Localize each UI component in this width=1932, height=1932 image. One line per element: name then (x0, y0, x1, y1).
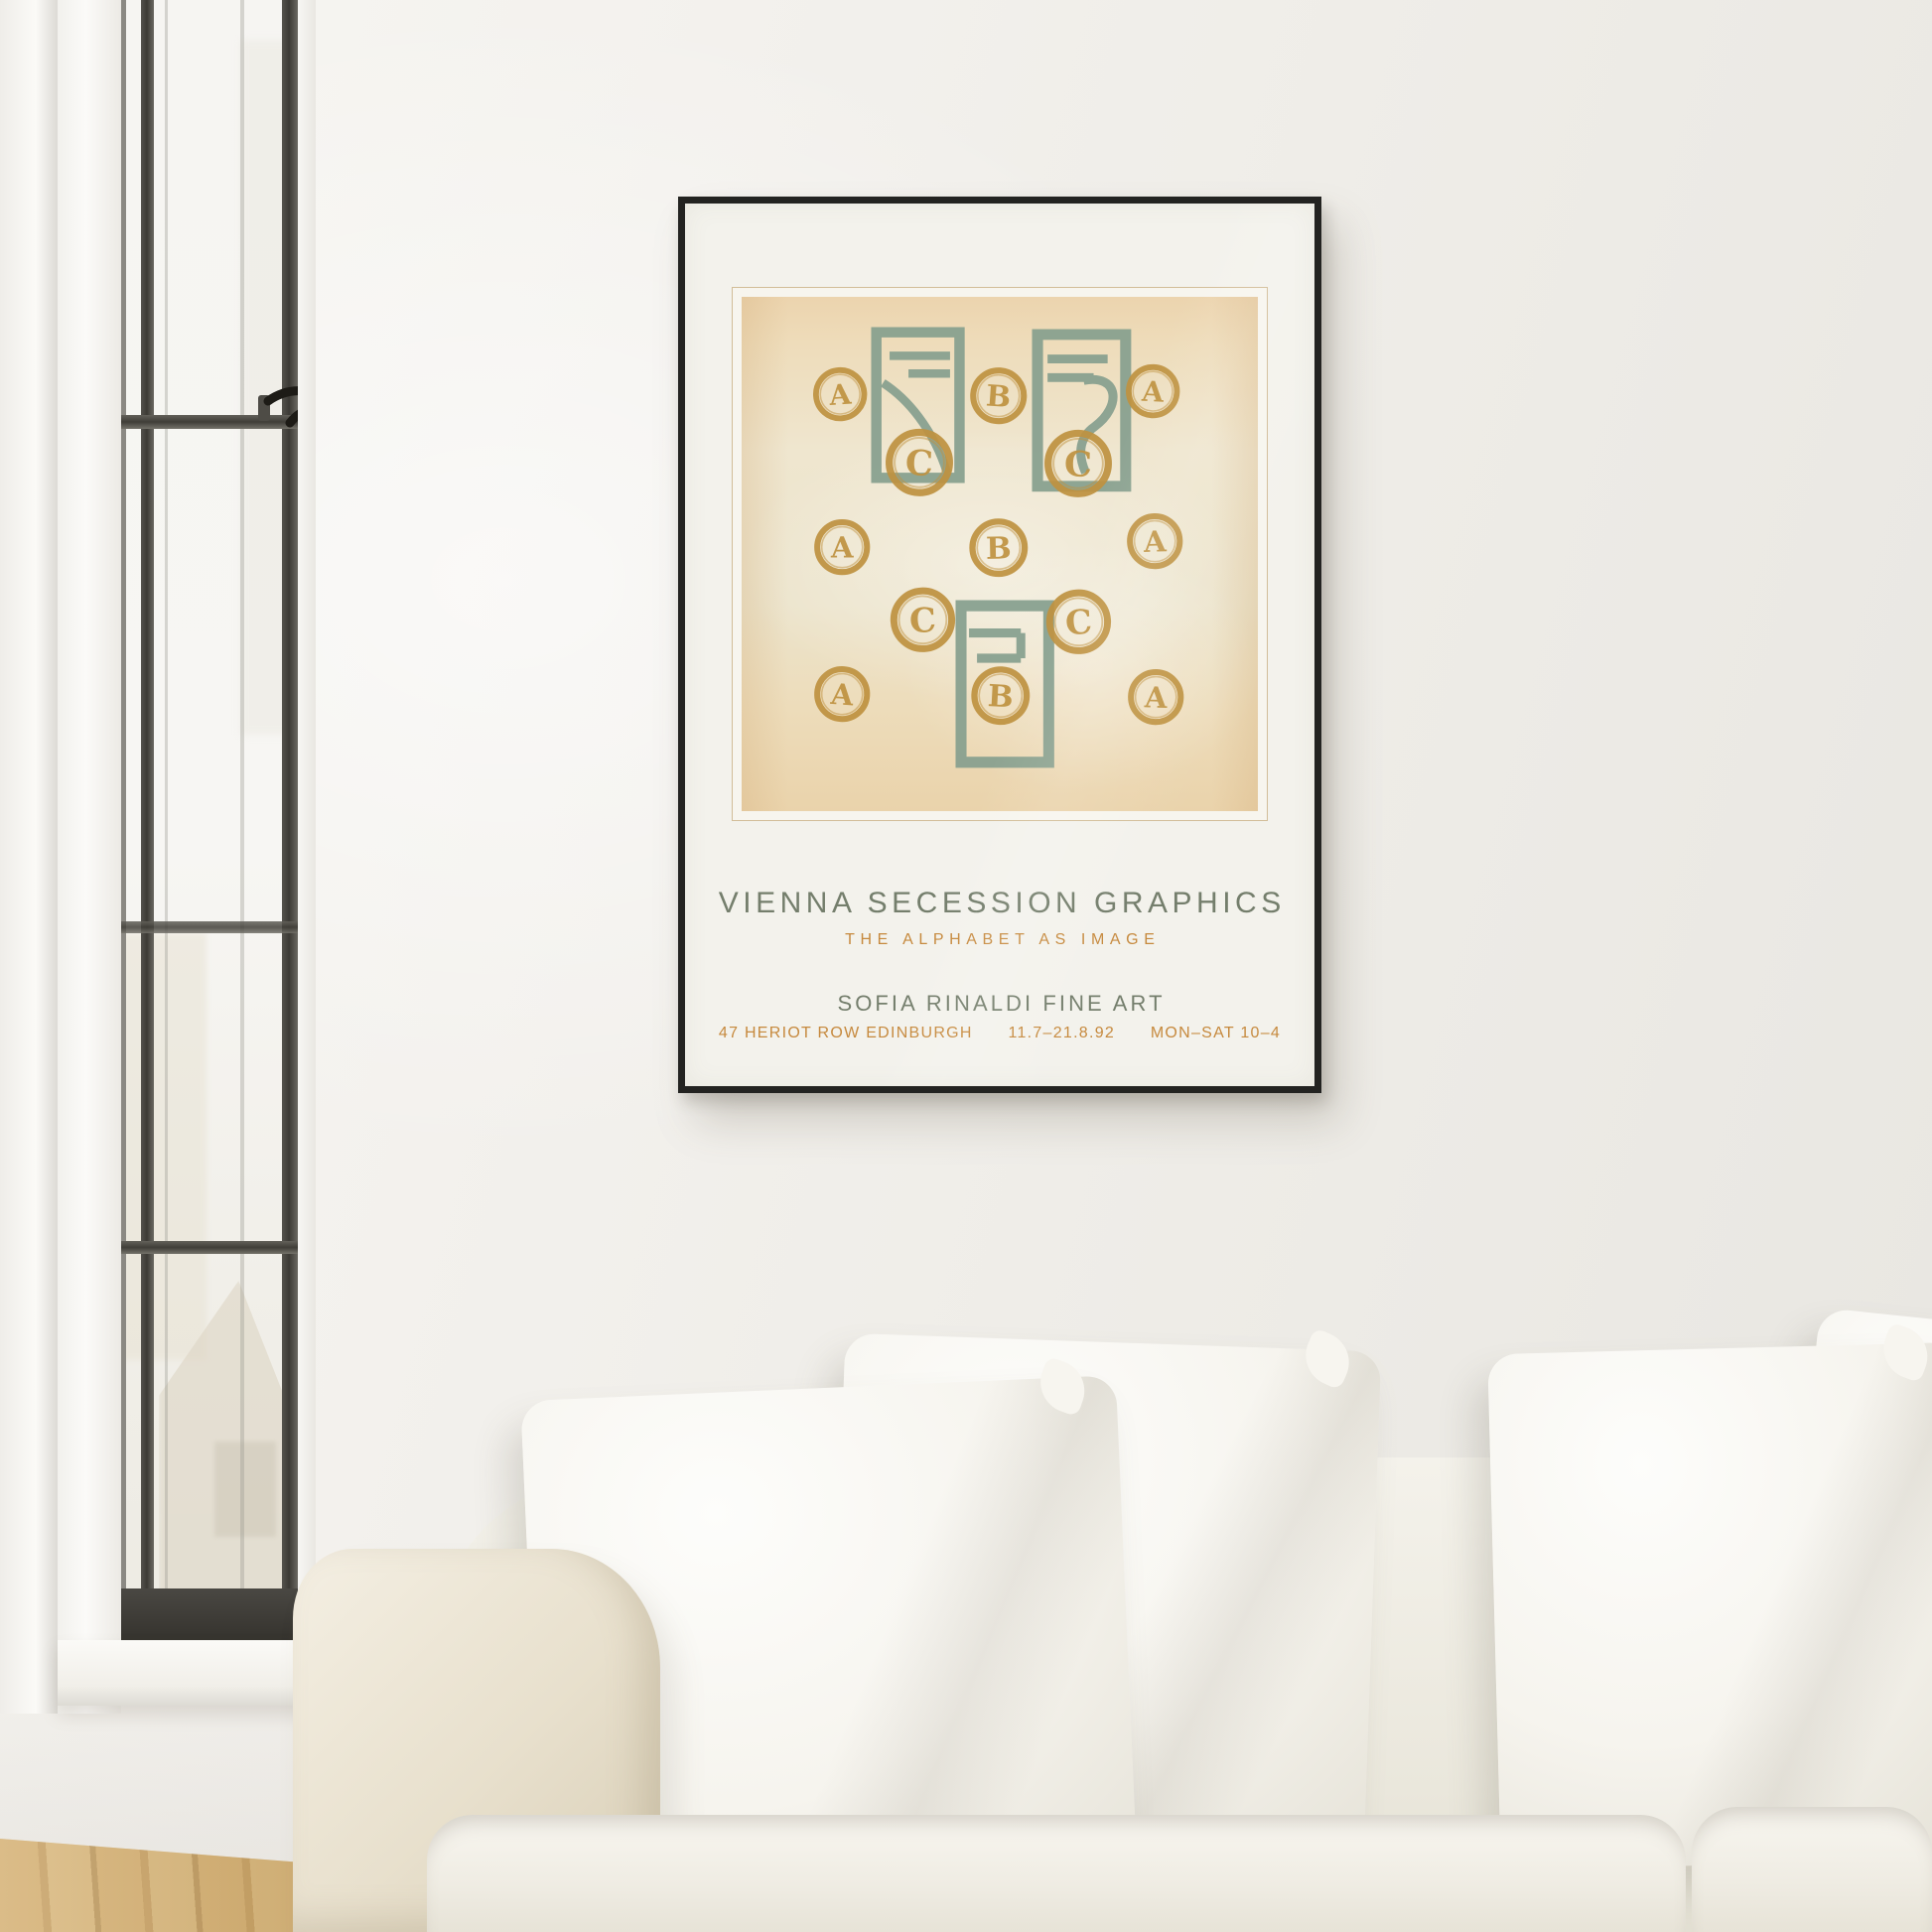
circled-letter-c: C (1038, 424, 1117, 502)
poster-hours: MON–SAT 10–4 (1151, 1025, 1281, 1041)
svg-text:A: A (830, 530, 854, 564)
window-handle[interactable] (256, 379, 298, 441)
svg-text:A: A (1142, 524, 1167, 559)
poster-address-street: 47 HERIOT ROW EDINBURGH (719, 1025, 973, 1041)
window-transom (121, 921, 298, 933)
circled-letter-b: B (965, 514, 1034, 582)
window-jamb (0, 0, 58, 1714)
throw-pillow (1487, 1342, 1932, 1870)
window-mullion (121, 0, 126, 1640)
window-mullion (282, 0, 298, 1640)
circled-letter-c: C (880, 423, 960, 502)
circled-letter-a: A (808, 660, 877, 729)
exterior-chimney (214, 1442, 276, 1537)
artwork-canvas: A B A C C A B A C C A B A (742, 297, 1258, 811)
svg-text:A: A (1144, 680, 1169, 715)
svg-text:C: C (1063, 601, 1093, 642)
window (0, 0, 316, 1714)
circled-letter-a: A (1123, 664, 1189, 730)
artwork-border: A B A C C A B A C C A B A (732, 287, 1268, 821)
svg-text:C: C (904, 443, 933, 484)
casement-edge (240, 0, 244, 1640)
window-mullion (141, 0, 154, 1640)
poster-gallery-name: SOFIA RINALDI FINE ART (685, 991, 1314, 1017)
svg-text:A: A (1140, 374, 1166, 408)
poster-address: 47 HERIOT ROW EDINBURGH 11.7–21.8.92 MON… (685, 1025, 1314, 1042)
circled-letter-a: A (807, 361, 874, 427)
poster-subtitle: THE ALPHABET AS IMAGE (685, 931, 1314, 949)
sofa-seat-cushion (427, 1815, 1686, 1932)
circled-letter-a: A (1120, 358, 1185, 423)
sofa-seat-cushion (1692, 1807, 1932, 1932)
exterior-building (121, 933, 207, 1360)
window-glass (121, 0, 298, 1640)
window-sill (58, 1640, 316, 1706)
window-frame-left (58, 0, 121, 1714)
circled-letter-a: A (810, 515, 874, 579)
window-frame-right (298, 0, 316, 1640)
svg-text:A: A (827, 377, 853, 412)
svg-text:A: A (829, 677, 855, 713)
circled-letter-c: C (1038, 582, 1118, 661)
svg-text:B: B (987, 678, 1015, 715)
poster-paper: A B A C C A B A C C A B A (685, 204, 1314, 1086)
poster-dates: 11.7–21.8.92 (1008, 1025, 1115, 1041)
poster-title: VIENNA SECESSION GRAPHICS (685, 887, 1314, 920)
circled-letter-b: B (966, 661, 1036, 732)
svg-text:C: C (1064, 444, 1093, 484)
svg-text:B: B (986, 531, 1012, 567)
living-room-scene: A B A C C A B A C C A B A (0, 0, 1932, 1932)
svg-text:B: B (985, 378, 1012, 415)
svg-text:C: C (908, 600, 937, 640)
window-bottom-rail (121, 1588, 298, 1640)
circled-letter-b: B (964, 361, 1034, 431)
poster-frame: A B A C C A B A C C A B A (678, 197, 1321, 1093)
window-transom (121, 1241, 298, 1254)
circled-letter-a: A (1122, 508, 1188, 574)
casement-edge (165, 0, 168, 1640)
circled-letter-c: C (884, 581, 962, 658)
